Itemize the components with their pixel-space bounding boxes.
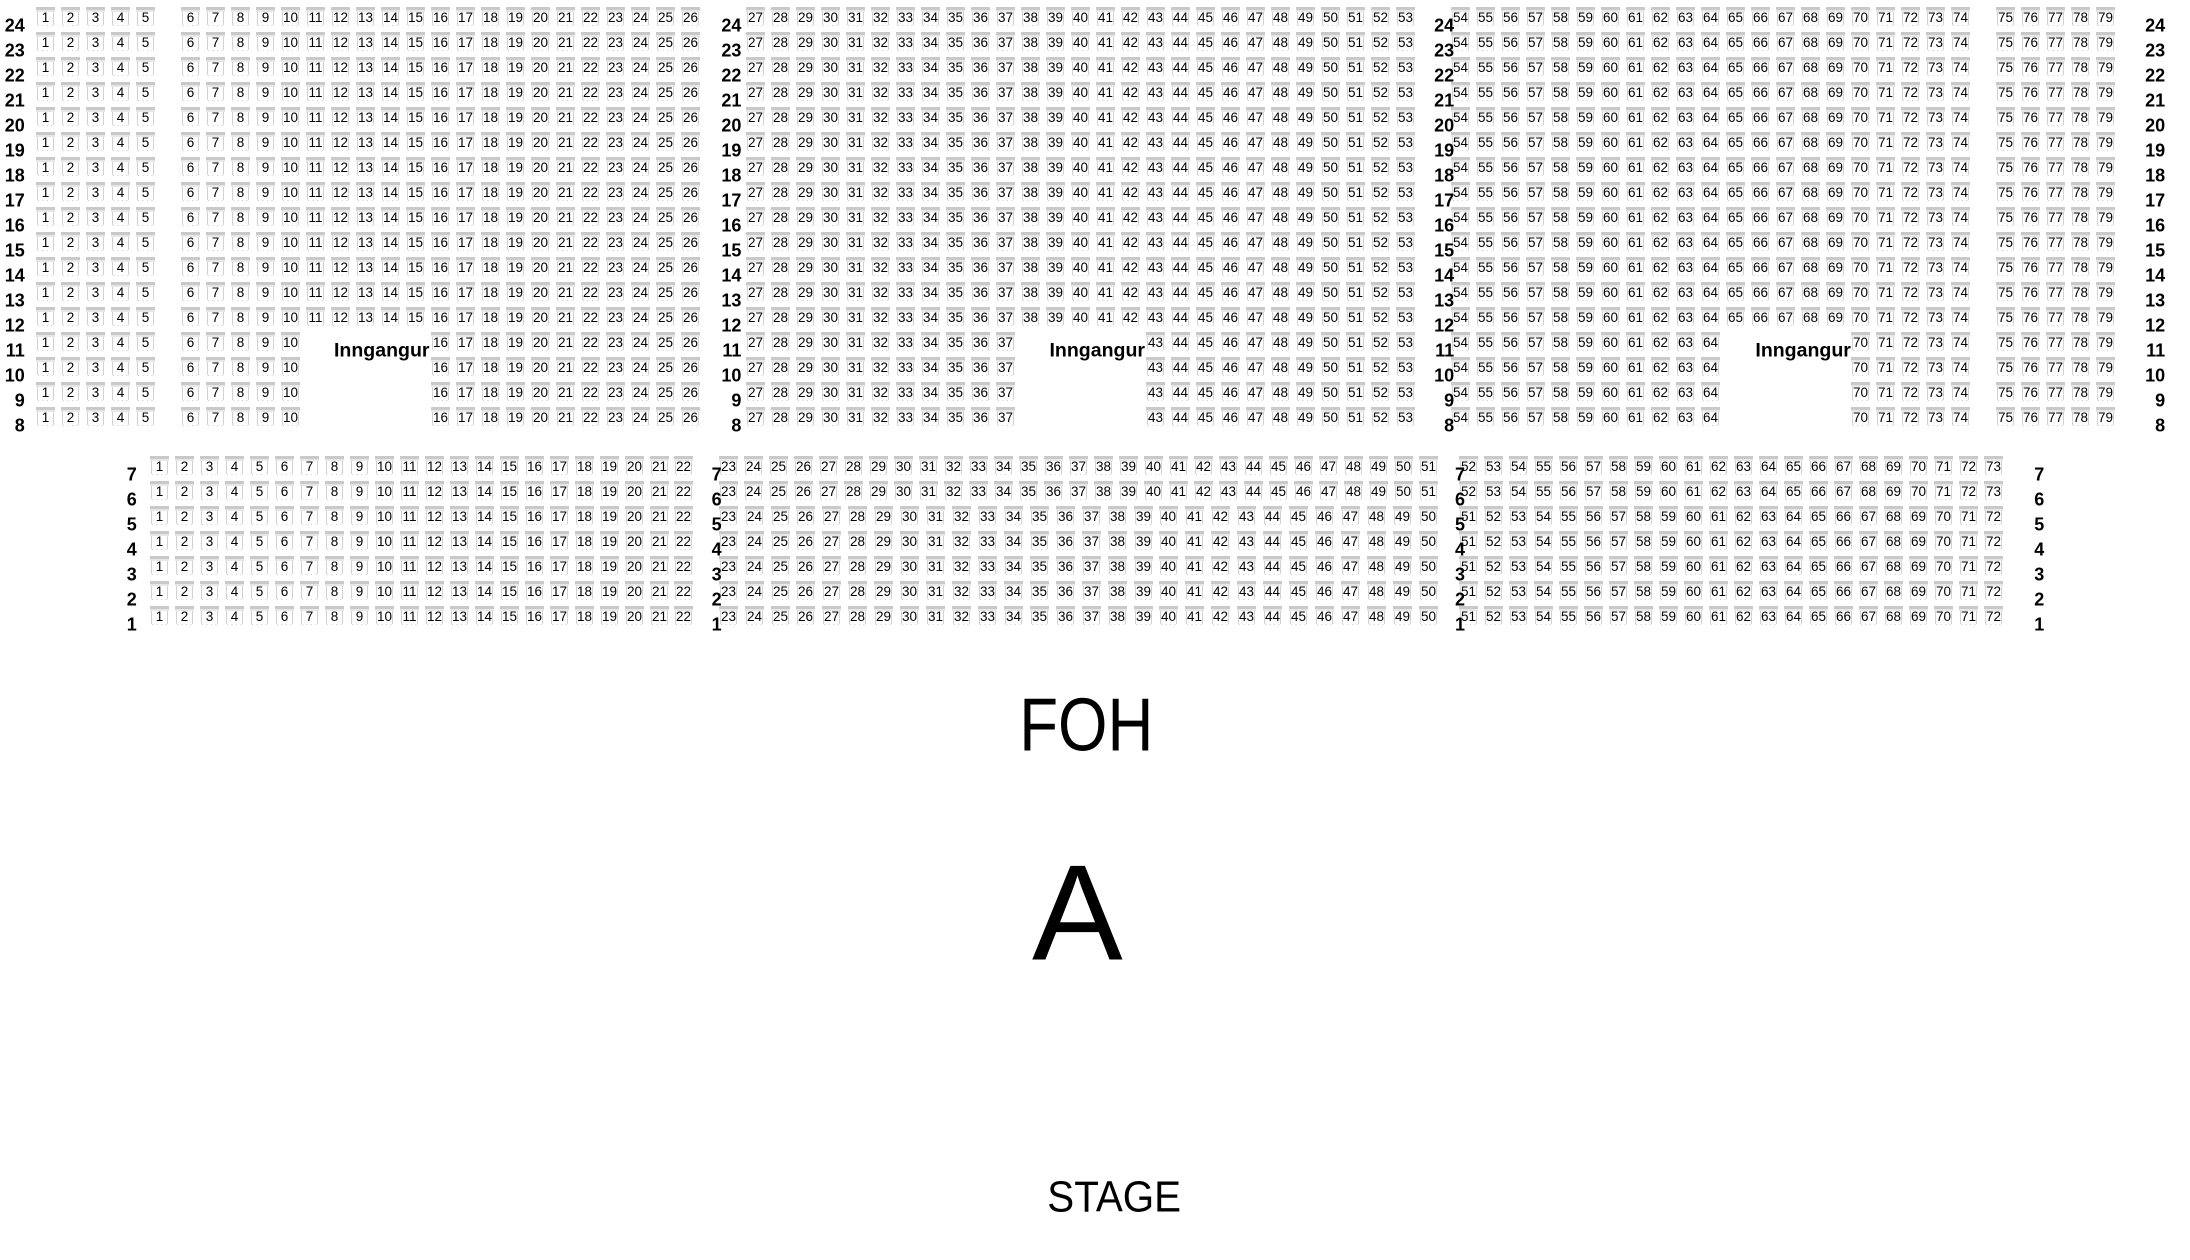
svg-text:Inngangur: Inngangur [334, 341, 430, 362]
svg-text:12: 12 [1434, 316, 1454, 336]
svg-text:1: 1 [1455, 615, 1465, 635]
svg-text:4: 4 [2034, 540, 2044, 560]
svg-text:5: 5 [712, 515, 722, 535]
svg-text:5: 5 [127, 515, 137, 535]
svg-text:16: 16 [5, 216, 25, 236]
svg-text:STAGE: STAGE [1047, 1173, 1181, 1222]
svg-text:17: 17 [2145, 191, 2165, 211]
svg-text:11: 11 [2146, 341, 2165, 361]
svg-text:1: 1 [127, 615, 137, 635]
svg-text:2: 2 [1455, 590, 1465, 610]
svg-text:6: 6 [127, 490, 137, 510]
svg-text:15: 15 [2145, 241, 2165, 261]
svg-text:15: 15 [1434, 241, 1454, 261]
svg-text:1: 1 [712, 615, 722, 635]
svg-text:12: 12 [721, 316, 741, 336]
svg-text:7: 7 [127, 465, 137, 485]
svg-text:9: 9 [15, 391, 25, 411]
svg-text:18: 18 [1434, 166, 1454, 186]
svg-text:Inngangur: Inngangur [1755, 341, 1851, 362]
svg-text:16: 16 [721, 216, 741, 236]
svg-text:15: 15 [5, 241, 25, 261]
svg-text:16: 16 [2145, 216, 2165, 236]
svg-text:6: 6 [1455, 490, 1465, 510]
svg-text:22: 22 [1434, 66, 1454, 86]
svg-text:24: 24 [721, 16, 741, 36]
svg-text:11: 11 [722, 341, 741, 361]
svg-text:20: 20 [721, 116, 741, 136]
svg-text:19: 19 [5, 141, 25, 161]
svg-text:7: 7 [1455, 465, 1465, 485]
svg-text:24: 24 [1434, 16, 1454, 36]
svg-text:Inngangur: Inngangur [1050, 341, 1146, 362]
svg-text:5: 5 [1455, 515, 1465, 535]
svg-text:13: 13 [721, 291, 741, 311]
svg-text:6: 6 [712, 490, 722, 510]
svg-text:19: 19 [721, 141, 741, 161]
svg-text:14: 14 [2145, 266, 2165, 286]
svg-text:8: 8 [15, 416, 25, 436]
svg-text:12: 12 [2145, 316, 2165, 336]
svg-text:18: 18 [5, 166, 25, 186]
svg-text:23: 23 [1434, 41, 1454, 61]
svg-text:21: 21 [5, 91, 25, 111]
svg-text:11: 11 [6, 341, 25, 361]
svg-text:13: 13 [5, 291, 25, 311]
svg-text:5: 5 [2034, 515, 2044, 535]
svg-text:2: 2 [712, 590, 722, 610]
svg-text:6: 6 [2034, 490, 2044, 510]
svg-text:15: 15 [721, 241, 741, 261]
svg-text:4: 4 [712, 540, 722, 560]
svg-text:23: 23 [2145, 41, 2165, 61]
svg-text:11: 11 [1435, 341, 1454, 361]
svg-text:23: 23 [721, 41, 741, 61]
svg-text:19: 19 [1434, 141, 1454, 161]
svg-text:24: 24 [2145, 16, 2165, 36]
svg-text:18: 18 [721, 166, 741, 186]
svg-text:18: 18 [2145, 166, 2165, 186]
svg-text:19: 19 [2145, 141, 2165, 161]
svg-text:22: 22 [5, 66, 25, 86]
svg-text:14: 14 [721, 266, 741, 286]
svg-text:10: 10 [1434, 366, 1454, 386]
svg-text:20: 20 [5, 116, 25, 136]
svg-text:7: 7 [712, 465, 722, 485]
svg-text:16: 16 [1434, 216, 1454, 236]
svg-text:13: 13 [1434, 291, 1454, 311]
svg-text:9: 9 [731, 391, 741, 411]
svg-text:8: 8 [731, 416, 741, 436]
svg-text:FOH: FOH [1019, 683, 1153, 767]
svg-text:4: 4 [1455, 540, 1465, 560]
svg-text:17: 17 [5, 191, 25, 211]
svg-text:3: 3 [127, 565, 137, 585]
svg-text:7: 7 [2034, 465, 2044, 485]
svg-text:2: 2 [2034, 590, 2044, 610]
svg-text:3: 3 [1455, 565, 1465, 585]
svg-text:3: 3 [2034, 565, 2044, 585]
svg-text:4: 4 [127, 540, 137, 560]
svg-text:20: 20 [1434, 116, 1454, 136]
svg-text:12: 12 [5, 316, 25, 336]
svg-text:2: 2 [127, 590, 137, 610]
svg-text:9: 9 [2155, 391, 2165, 411]
svg-text:21: 21 [1434, 91, 1454, 111]
svg-text:20: 20 [2145, 116, 2165, 136]
svg-text:17: 17 [721, 191, 741, 211]
svg-text:21: 21 [721, 91, 741, 111]
svg-text:24: 24 [5, 16, 25, 36]
svg-text:13: 13 [2145, 291, 2165, 311]
svg-text:10: 10 [721, 366, 741, 386]
svg-text:1: 1 [2034, 615, 2044, 635]
svg-text:23: 23 [5, 41, 25, 61]
svg-text:14: 14 [1434, 266, 1454, 286]
svg-text:17: 17 [1434, 191, 1454, 211]
svg-text:22: 22 [2145, 66, 2165, 86]
svg-text:14: 14 [5, 266, 25, 286]
svg-text:8: 8 [2155, 416, 2165, 436]
svg-text:21: 21 [2145, 91, 2165, 111]
svg-text:22: 22 [721, 66, 741, 86]
svg-text:8: 8 [1444, 416, 1454, 436]
svg-text:10: 10 [5, 366, 25, 386]
svg-text:9: 9 [1444, 391, 1454, 411]
svg-text:10: 10 [2145, 366, 2165, 386]
svg-text:A: A [1032, 837, 1123, 989]
svg-text:3: 3 [712, 565, 722, 585]
